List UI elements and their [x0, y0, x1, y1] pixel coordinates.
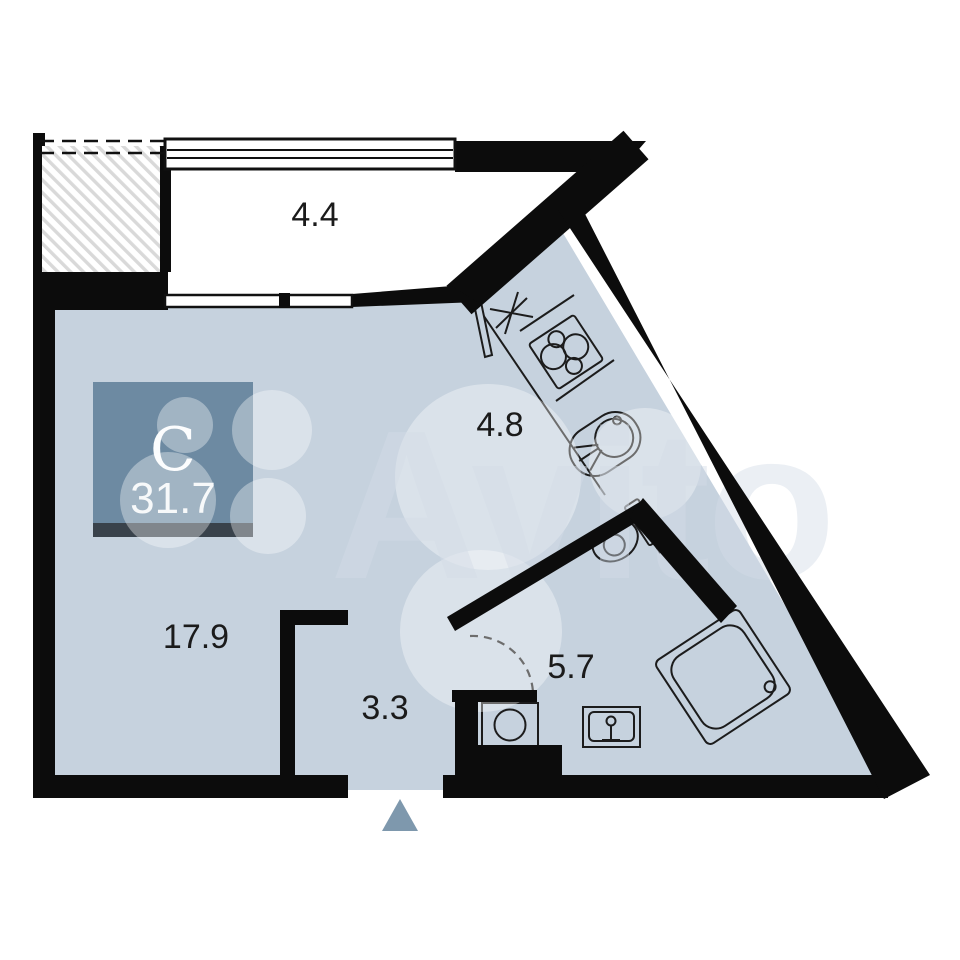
entrance-arrow-icon — [382, 799, 418, 831]
wall-under-hatch — [33, 271, 168, 310]
wall-interior-vertical — [280, 610, 295, 777]
hallway-area-label: 3.3 — [361, 689, 408, 727]
living-room-area-label: 17.9 — [163, 618, 229, 656]
bathroom-area-label: 5.7 — [547, 648, 594, 686]
living-room-window — [165, 293, 352, 308]
wall-bathroom-left — [455, 692, 478, 752]
wall-bottom-left — [33, 775, 348, 798]
hatched-area — [40, 141, 168, 272]
balcony-glazing — [165, 139, 455, 169]
kitchen-area-label: 4.8 — [476, 406, 523, 444]
wall-left-main — [33, 308, 55, 798]
wall-interior-cap — [280, 610, 348, 625]
floorplan-canvas: С 31.7 — [0, 0, 960, 960]
watermark-text: Avito — [330, 386, 832, 623]
floorplan-svg: С 31.7 — [0, 0, 960, 960]
balcony-area-label: 4.4 — [291, 196, 338, 234]
wall-bottom-right — [443, 775, 888, 798]
wall-under-washer — [455, 745, 562, 777]
